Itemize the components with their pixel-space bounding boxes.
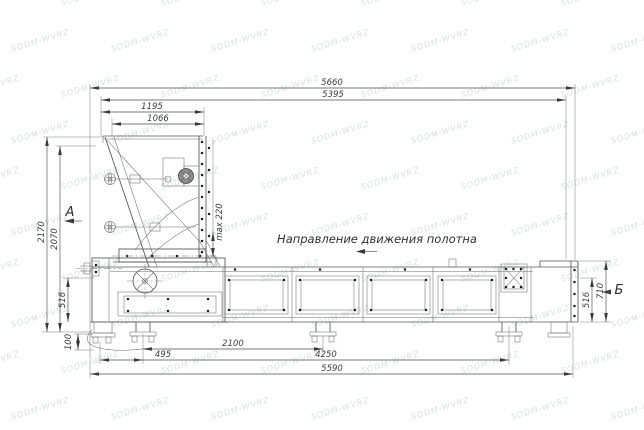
dim-overall-length-top: 5660 bbox=[321, 78, 343, 88]
dimensions-bottom: 2100 495 4250 5590 bbox=[90, 326, 573, 378]
belt-direction-arrow-icon bbox=[356, 249, 365, 254]
view-label-b: Б bbox=[615, 283, 624, 298]
hopper-press-unit bbox=[103, 136, 220, 267]
belt-direction-text: Направление движения полотна bbox=[277, 232, 477, 246]
belt-direction-annotation: Направление движения полотна bbox=[277, 232, 477, 254]
dimension-belt-clearance: max 220 bbox=[213, 140, 225, 257]
dimensions-left: 2170 2070 516 100 А bbox=[37, 137, 104, 350]
drawing-page: { "page": {"background": "#ffffff"}, "wa… bbox=[0, 0, 644, 430]
support-legs bbox=[87, 322, 570, 350]
dim-body-height-right: 516 bbox=[582, 291, 592, 308]
handwheel-lower-icon bbox=[105, 222, 197, 233]
dim-hopper-width-outer: 1195 bbox=[141, 102, 163, 112]
dim-frame-height: 2070 bbox=[50, 228, 60, 250]
dim-overall-height: 2170 bbox=[37, 221, 47, 243]
dim-hopper-width-inner: 1066 bbox=[147, 114, 169, 124]
dim-support-offset: 495 bbox=[155, 350, 171, 360]
dim-foot-height: 100 bbox=[64, 334, 74, 350]
dim-frame-length-top: 5395 bbox=[322, 90, 344, 100]
dim-overall-length-bottom: 5590 bbox=[321, 364, 343, 374]
dim-support-span: 4250 bbox=[315, 350, 337, 360]
engineering-drawing-canvas: 5660 5395 1195 1066 2170 2070 516 100 А … bbox=[0, 0, 644, 430]
handwheel-upper-icon bbox=[105, 174, 172, 185]
dim-support-spacing: 2100 bbox=[222, 339, 244, 349]
discharge-end bbox=[501, 261, 578, 322]
dim-belt-clearance: max 220 bbox=[215, 203, 225, 240]
dimensions-top: 5660 5395 1195 1066 bbox=[90, 78, 575, 378]
view-label-a: А bbox=[65, 205, 75, 220]
dimensions-right: 516 710 Б bbox=[580, 261, 624, 322]
dim-body-height-left: 516 bbox=[58, 291, 68, 308]
drive-station bbox=[76, 258, 225, 322]
dim-discharge-height: 710 bbox=[596, 283, 606, 299]
